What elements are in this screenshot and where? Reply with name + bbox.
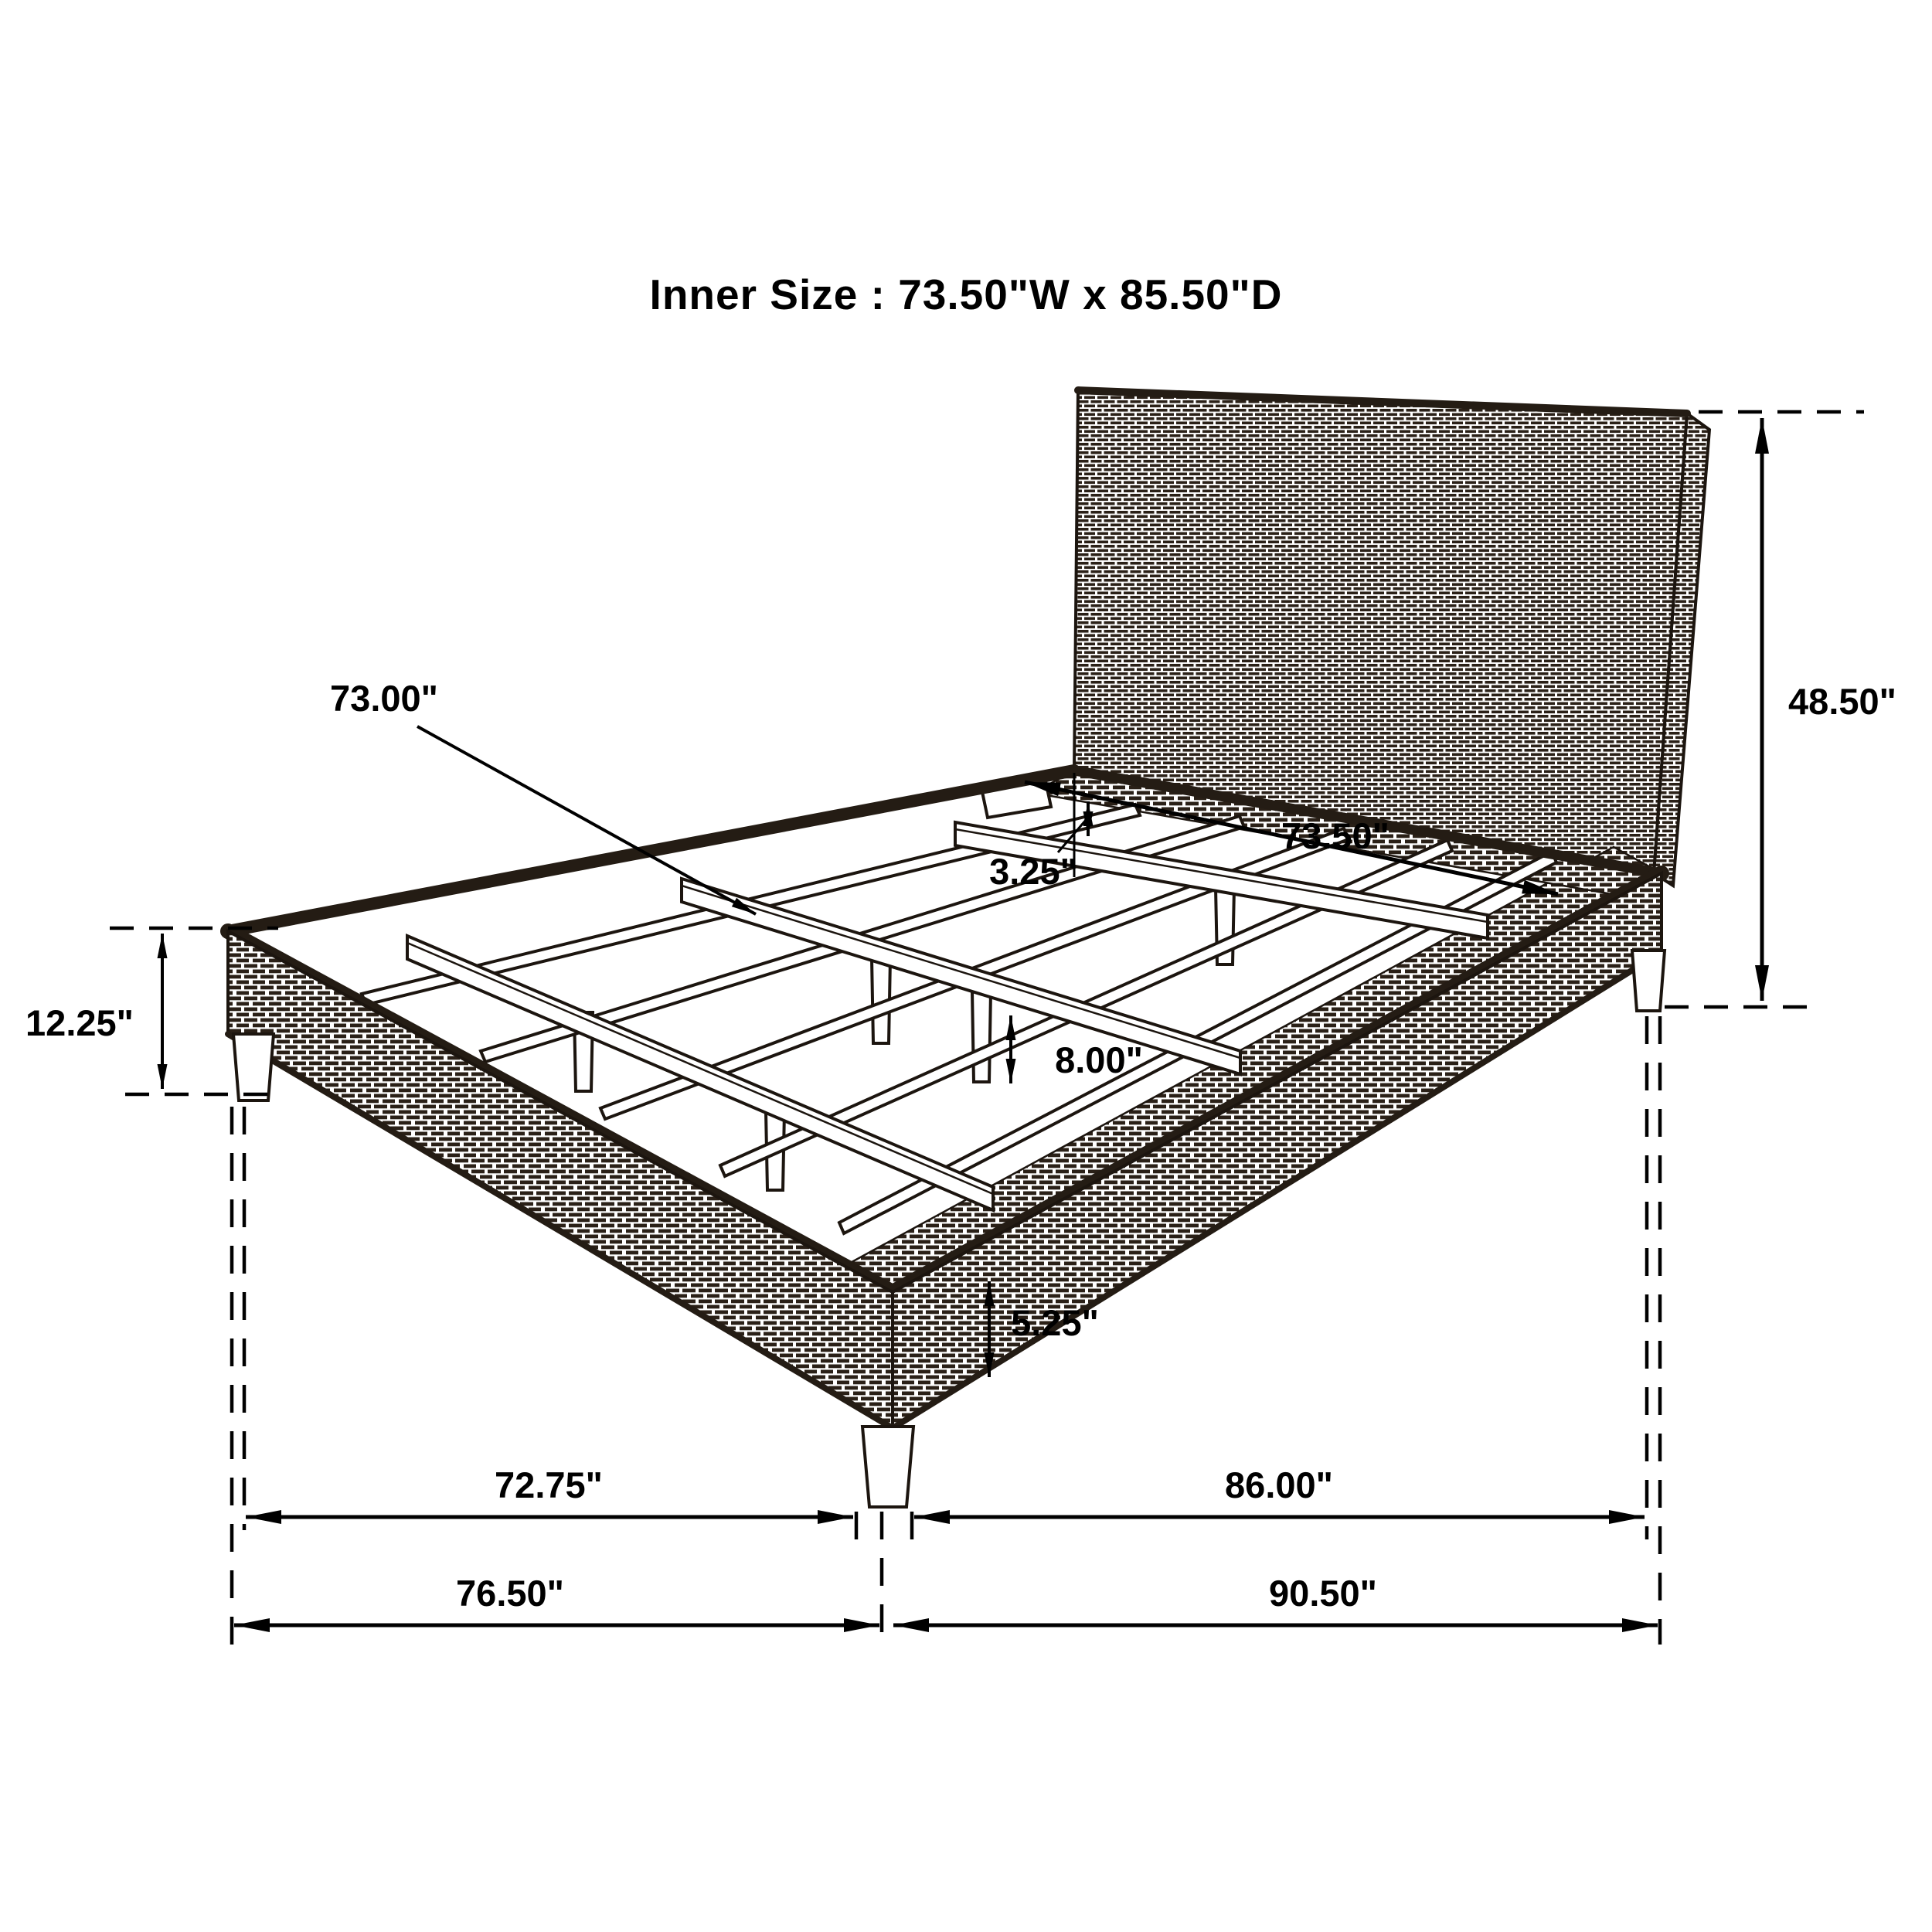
leg-rear-right — [1632, 951, 1665, 1011]
dim-label-footboard-height: 12.25" — [26, 1002, 134, 1043]
dim-label-leg-height: 5.25" — [1011, 1302, 1099, 1343]
dim-overall-width: 76.50" — [234, 1573, 879, 1625]
dim-label-inner-width: 73.50" — [1281, 815, 1389, 856]
dim-overall-depth: 90.50" — [893, 1573, 1658, 1625]
dim-width-between-legs: 72.75" — [246, 1464, 853, 1517]
slat-post — [972, 992, 991, 1082]
diagram-title: Inner Size : 73.50"W x 85.50"D — [650, 270, 1283, 318]
leg-front-corner — [862, 1427, 913, 1507]
bed-dimension-diagram: 73.00" 48.50" 12.25" 3.25" 73.50" 8.00" … — [0, 0, 1932, 1932]
dim-label-depth-between-legs: 86.00" — [1225, 1464, 1333, 1505]
dim-label-width-between-legs: 72.75" — [495, 1464, 603, 1505]
leg-front-left — [233, 1034, 274, 1100]
dim-label-overall-width: 76.50" — [456, 1573, 564, 1614]
bed-dimension-diagram-page: 73.00" 48.50" 12.25" 3.25" 73.50" 8.00" … — [0, 0, 1932, 1932]
dim-depth-between-legs: 86.00" — [914, 1464, 1645, 1517]
dim-label-headboard-height: 48.50" — [1788, 681, 1896, 722]
dim-label-overall-depth: 90.50" — [1269, 1573, 1377, 1614]
dim-label-slat-rail-length: 73.00" — [330, 678, 438, 719]
dim-label-rail-top-to-slat: 3.25" — [989, 851, 1077, 892]
dim-label-slat-support-height: 8.00" — [1055, 1039, 1143, 1080]
